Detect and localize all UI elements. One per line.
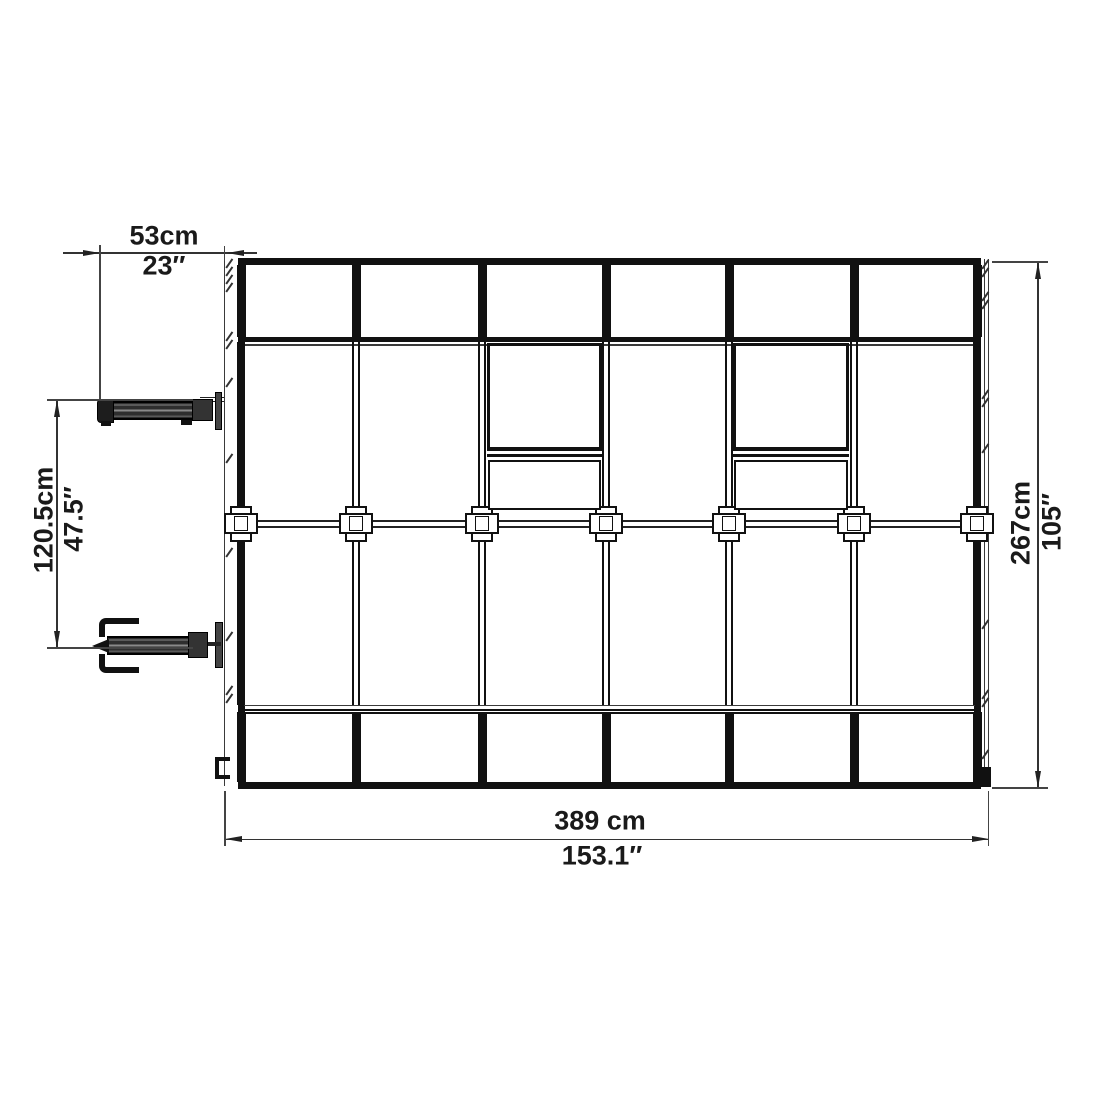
roof-rib-bottom-segment — [850, 712, 859, 782]
hub-connector-core — [234, 516, 248, 531]
opener-end-block — [188, 632, 208, 658]
opener-foot-b — [181, 420, 192, 425]
dimension-right-line — [1037, 262, 1038, 788]
vent-mid-bar-a — [733, 448, 849, 451]
dimension-bottom-metric-label: 389 cm — [554, 808, 646, 835]
vent-mid-bar-b — [733, 454, 849, 457]
dimension-bottom-arrow-right — [972, 836, 989, 842]
frame-bottom-edge — [238, 782, 981, 789]
roof-rib-mid-segment — [478, 342, 486, 520]
hub-connector-core — [599, 516, 613, 531]
left-wall-hatch-mark — [225, 547, 233, 557]
dimension-top-extension-a — [99, 245, 100, 401]
vent-lower-pane — [488, 460, 601, 510]
vent-upper-pane — [487, 343, 602, 450]
roof-rib-bottom-segment — [478, 712, 487, 782]
dimension-top-imperial-label: 23″ — [143, 253, 186, 280]
vent-upper-pane — [733, 343, 849, 450]
dimension-bottom-extension-b — [988, 791, 989, 846]
opener-foot-a — [101, 421, 111, 426]
left-wall-hatch-mark — [225, 631, 233, 641]
dimension-left-arrow-top — [54, 400, 60, 417]
frame-top-edge — [238, 258, 981, 265]
roof-rib-bottom-segment — [725, 712, 734, 782]
roof-rib-mid-segment — [602, 342, 610, 520]
dimension-top-metric-label: 53cm — [129, 223, 198, 250]
dimension-right-extension-b — [992, 787, 1048, 788]
dimension-top-arrow-left — [83, 250, 100, 256]
door-latch-left — [215, 757, 230, 779]
dimension-right-arrow-bottom — [1035, 771, 1041, 788]
roof-rib-top-segment — [602, 265, 611, 337]
frame-lower-crossbar-a — [244, 709, 975, 711]
dimension-right-imperial-label: 105″ — [1039, 493, 1066, 551]
dimension-right-arrow-top — [1035, 262, 1041, 279]
opener-pointed-tip — [92, 639, 109, 653]
opener-cylinder — [107, 636, 192, 655]
roof-rib-mid-segment — [973, 528, 981, 705]
roof-rib-bottom-segment — [602, 712, 611, 782]
roof-rib-mid-segment — [352, 528, 360, 705]
left-wall-hatch-mark — [225, 453, 233, 463]
roof-rib-mid-segment — [850, 528, 858, 705]
opener-hook-bottom — [99, 654, 139, 673]
roof-rib-mid-segment — [602, 528, 610, 705]
opener-wall-plate — [215, 392, 222, 430]
vent-mid-bar-b — [487, 454, 602, 457]
corner-bracket-right — [978, 767, 991, 787]
dimension-left-metric-label: 120.5cm — [31, 467, 58, 574]
hub-connector-core — [847, 516, 861, 531]
hub-connector-core — [722, 516, 736, 531]
dimension-left-extension-a — [47, 399, 193, 400]
roof-rib-mid-segment — [850, 342, 858, 520]
opener-end-block — [192, 399, 213, 421]
dimension-top-arrow-right — [227, 250, 244, 256]
roof-rib-mid-segment — [478, 528, 486, 705]
roof-rib-mid-segment — [725, 528, 733, 705]
dimension-bottom-line — [225, 839, 989, 840]
hub-connector-core — [475, 516, 489, 531]
roof-rib-top-segment — [478, 265, 487, 337]
dimension-bottom-imperial-label: 153.1″ — [562, 843, 643, 870]
greenhouse-top-view-diagram: 53cm 23″ 120.5cm 47.5″ 267cm 105″ 389 cm… — [0, 0, 1096, 1096]
roof-rib-top-segment — [352, 265, 361, 337]
hub-connector-core — [970, 516, 984, 531]
roof-rib-top-segment — [725, 265, 734, 337]
dimension-bottom-extension-a — [224, 791, 225, 846]
dimension-top-extension-b — [224, 246, 225, 261]
opener-cylinder — [113, 401, 195, 420]
dimension-left-arrow-bottom — [54, 631, 60, 648]
roof-rib-bottom-segment — [352, 712, 361, 782]
hub-connector-core — [349, 516, 363, 531]
opener-left-cap — [97, 399, 114, 423]
roof-rib-mid-segment — [237, 528, 245, 705]
vent-mid-bar-a — [487, 448, 602, 451]
vent-lower-pane — [734, 460, 848, 510]
dimension-left-extension-b — [47, 647, 193, 648]
dimension-left-line — [56, 400, 57, 648]
left-wall-hatch-mark — [225, 377, 233, 387]
roof-rib-mid-segment — [725, 342, 733, 520]
roof-rib-top-segment — [237, 265, 246, 337]
dimension-left-imperial-label: 47.5″ — [61, 486, 88, 551]
dimension-right-metric-label: 267cm — [1008, 481, 1035, 565]
roof-rib-mid-segment — [973, 342, 981, 520]
opener-hook-top — [99, 618, 139, 637]
roof-rib-bottom-segment — [237, 712, 246, 782]
dimension-bottom-arrow-left — [225, 836, 242, 842]
dimension-right-extension-a — [992, 261, 1048, 262]
roof-rib-mid-segment — [352, 342, 360, 520]
roof-rib-top-segment — [850, 265, 859, 337]
roof-rib-mid-segment — [237, 342, 245, 520]
